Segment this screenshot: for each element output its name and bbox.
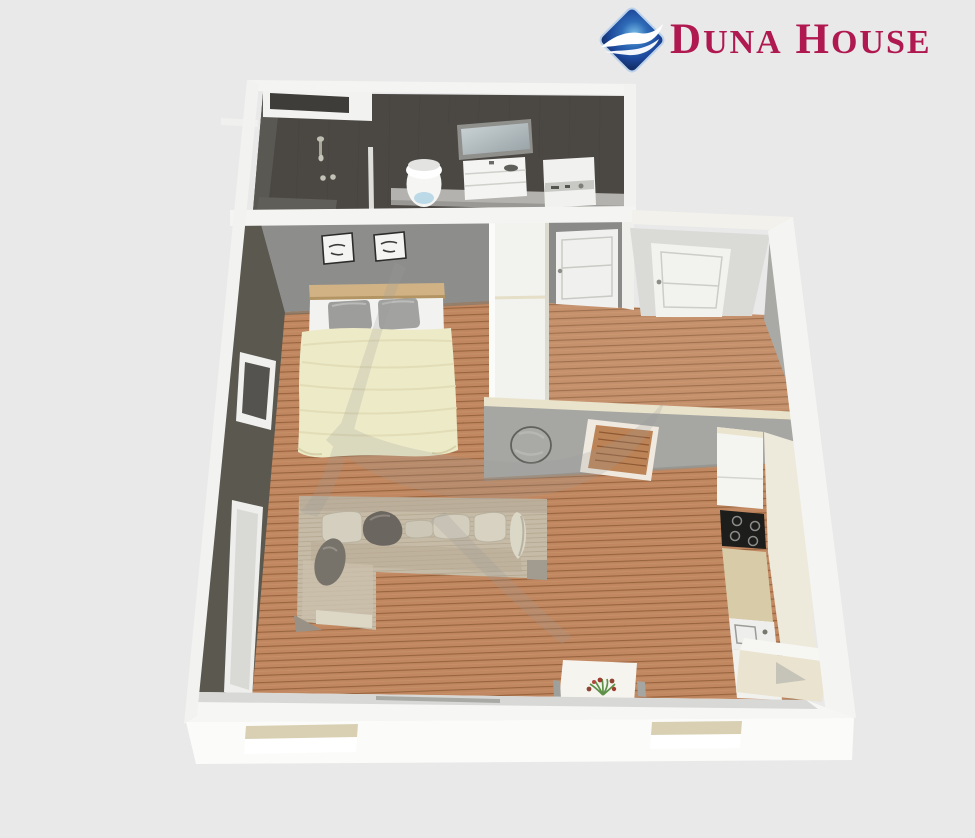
svg-text:DUNA HOUSE: DUNA HOUSE (670, 16, 932, 63)
